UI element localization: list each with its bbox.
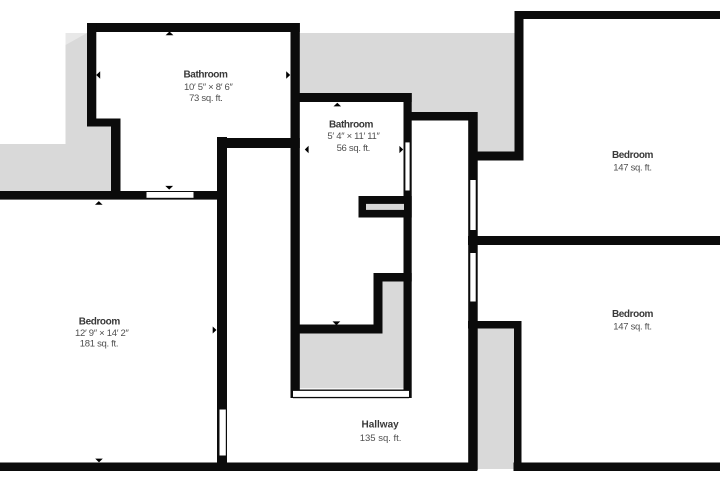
svg-text:Bathroom: Bathroom — [329, 120, 374, 131]
svg-text:73 sq. ft.: 73 sq. ft. — [189, 93, 222, 104]
svg-text:5′ 4″ × 11′ 11″: 5′ 4″ × 11′ 11″ — [327, 131, 380, 142]
svg-text:Bedroom: Bedroom — [79, 316, 121, 327]
svg-text:10′ 5″ × 8′ 6″: 10′ 5″ × 8′ 6″ — [184, 82, 234, 93]
svg-text:147 sq. ft.: 147 sq. ft. — [613, 163, 651, 174]
svg-text:Bedroom: Bedroom — [612, 309, 654, 320]
svg-text:Bedroom: Bedroom — [612, 150, 654, 161]
svg-text:56 sq. ft.: 56 sq. ft. — [337, 143, 370, 154]
svg-text:12′ 9″ × 14′ 2″: 12′ 9″ × 14′ 2″ — [75, 328, 130, 339]
svg-text:147 sq. ft.: 147 sq. ft. — [613, 322, 651, 333]
svg-text:135 sq. ft.: 135 sq. ft. — [360, 433, 402, 444]
svg-text:Hallway: Hallway — [361, 419, 399, 430]
svg-text:Bathroom: Bathroom — [183, 70, 228, 81]
svg-text:181 sq. ft.: 181 sq. ft. — [80, 339, 118, 350]
